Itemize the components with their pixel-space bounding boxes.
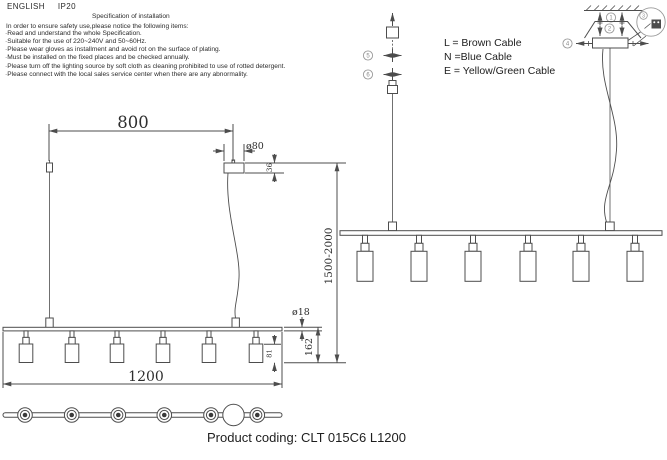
fixture-bar-front: [3, 327, 282, 331]
canopy-joint-bottom: [223, 404, 244, 425]
fixture-bar-side: [340, 231, 662, 236]
lamp-bottom: [18, 408, 33, 423]
lamp-shade: [465, 235, 481, 281]
power-cable: [228, 173, 240, 328]
lamp-shade: [110, 331, 124, 363]
dimension-canopy-height: 36: [245, 154, 284, 182]
cable-bar-fitting: [606, 222, 615, 231]
canopy-side-view: [593, 38, 629, 48]
lamp-shades-side: [357, 235, 643, 281]
dimension-lamp-drop-label: 162: [304, 338, 315, 356]
bottom-view-drawing: [3, 404, 282, 425]
lamp-shade: [573, 235, 589, 281]
installation-drawing: 800: [0, 0, 667, 460]
ceiling-mount-detail: 1 2: [563, 6, 665, 49]
dimension-canopy-diameter: ø80: [213, 141, 264, 161]
dimension-drop-range: 1500-2000: [245, 163, 346, 363]
suspension-assembly-detail: 5 6: [363, 13, 401, 231]
terminal-block-detail: 3: [628, 8, 665, 46]
ceiling-hatching: [584, 6, 643, 11]
dimension-1200-label: 1200: [128, 369, 164, 385]
lamp-shade: [249, 331, 263, 363]
dimension-shade-height: 81: [264, 335, 281, 372]
lamp-shade: [19, 331, 33, 363]
lamp-shades-front: [19, 331, 263, 363]
coiled-cable: [602, 49, 616, 222]
dimension-800-label: 800: [117, 113, 149, 132]
dimension-canopy-height-label: 36: [265, 163, 274, 173]
dimension-lamp-drop: 162: [304, 327, 318, 363]
dimension-canopy-diameter-label: ø80: [246, 141, 264, 152]
ceiling-canopy: [224, 160, 244, 173]
lamp-shade: [627, 235, 643, 281]
dimension-bar-diameter-label: ø18: [292, 307, 310, 318]
dimension-shade-height-label: 81: [266, 349, 274, 358]
spec-sheet: ENGLISHIP20 Specification of installatio…: [0, 0, 667, 460]
dimension-800: 800: [49, 113, 233, 161]
lamp-bottom: [204, 408, 219, 423]
lamp-bottom: [157, 408, 172, 423]
power-cord-assembly: [602, 48, 616, 231]
lamp-bottom: [111, 408, 126, 423]
lamp-shade: [411, 235, 427, 281]
dimension-drop-range-label: 1500-2000: [323, 228, 335, 285]
wire-lock-part: [384, 68, 402, 80]
lamp-bottom: [250, 408, 265, 423]
dimension-1200: 1200: [3, 332, 282, 388]
front-view-drawing: 800: [3, 113, 346, 388]
lamp-shade: [520, 235, 536, 281]
dimension-bar-diameter: ø18: [284, 307, 322, 341]
suspension-wire-left: [46, 160, 53, 328]
lamp-shade: [156, 331, 170, 363]
side-view-drawing: 5 6: [340, 6, 665, 282]
wire-grip-part: [388, 81, 398, 94]
lamp-shade: [65, 331, 79, 363]
lamp-shade: [357, 235, 373, 281]
callout-3-label: 3: [642, 13, 645, 19]
wire-lock-part: [384, 49, 402, 62]
lamp-bottom: [64, 408, 79, 423]
terminal-block-icon: [652, 20, 662, 29]
wire-bar-fitting: [389, 222, 397, 231]
lamp-shade: [202, 331, 216, 363]
